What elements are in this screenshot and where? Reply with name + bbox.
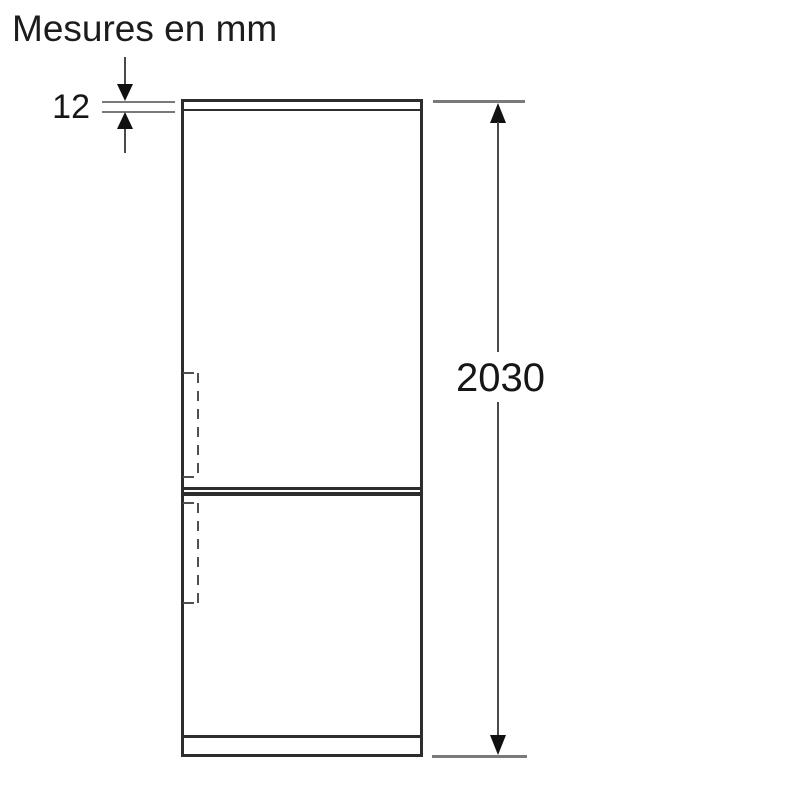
upper-hinge-top-tick <box>183 372 194 374</box>
dim12-up-arrowhead <box>117 112 133 129</box>
dim12-label: 12 <box>40 90 90 124</box>
upper-hinge-bottom-tick <box>183 476 194 478</box>
fridge-plinth-line <box>184 735 420 738</box>
dim12-down-arrowhead <box>117 84 133 101</box>
diagram-title: Mesures en mm <box>12 10 277 47</box>
fridge-top-panel-line <box>184 109 420 111</box>
dim2030-line-lower-segment <box>497 402 499 736</box>
dim12-extension-line-top <box>102 101 175 103</box>
dim2030-down-arrowhead <box>490 735 506 755</box>
fridge-bottom-edge <box>181 754 423 757</box>
dim2030-line-upper-segment <box>497 122 499 352</box>
dim12-lower-leader-line <box>124 129 126 153</box>
upper-door-hinge-dashed-line <box>197 373 199 478</box>
dim2030-up-arrowhead <box>490 103 506 123</box>
upper-door-bottom-edge <box>184 487 420 490</box>
dimension-diagram-canvas: Mesures en mm <box>0 0 800 800</box>
dim2030-label: 2030 <box>448 358 553 398</box>
dim2030-extension-line-bottom <box>432 755 527 758</box>
dim2030-extension-line-top <box>433 100 525 103</box>
dim12-extension-line-bottom <box>102 111 175 113</box>
lower-hinge-top-tick <box>183 502 194 504</box>
dim12-upper-leader-line <box>124 57 126 84</box>
fridge-right-edge <box>420 99 423 757</box>
lower-hinge-bottom-tick <box>183 602 194 604</box>
lower-door-top-edge <box>184 492 420 496</box>
lower-door-hinge-dashed-line <box>197 503 199 605</box>
fridge-top-edge <box>181 99 423 102</box>
fridge-left-edge <box>181 99 184 757</box>
